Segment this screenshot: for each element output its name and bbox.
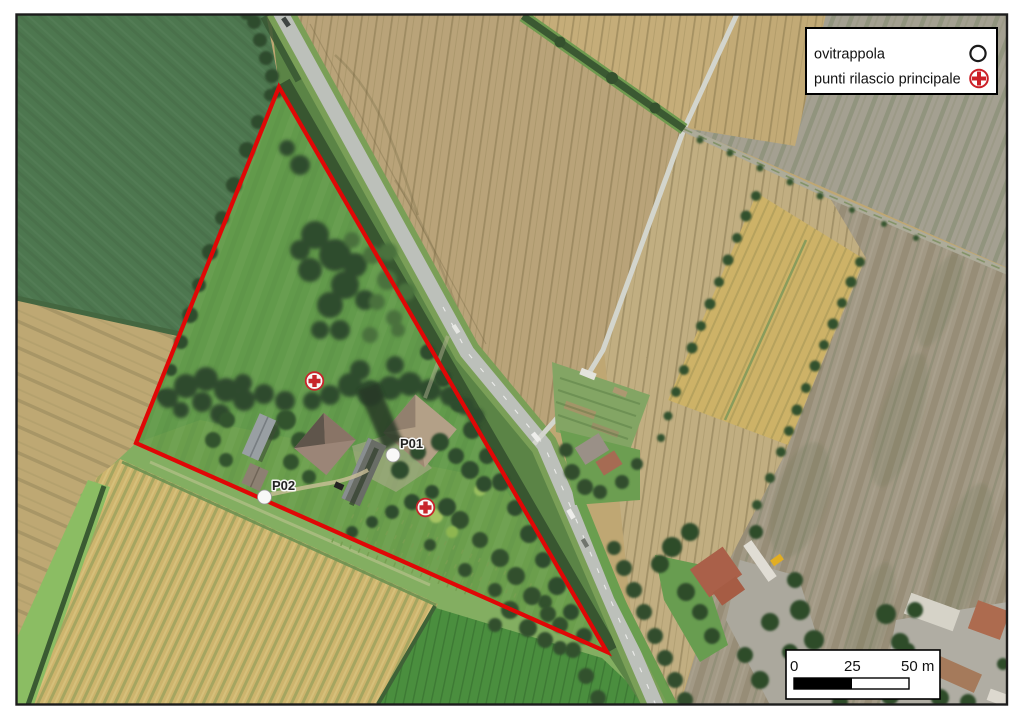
svg-text:punti rilascio principale: punti rilascio principale — [814, 72, 961, 88]
svg-text:25: 25 — [844, 658, 861, 675]
svg-text:0: 0 — [790, 658, 798, 675]
svg-text:50 m: 50 m — [901, 658, 934, 675]
svg-text:ovitrappola: ovitrappola — [814, 47, 886, 63]
